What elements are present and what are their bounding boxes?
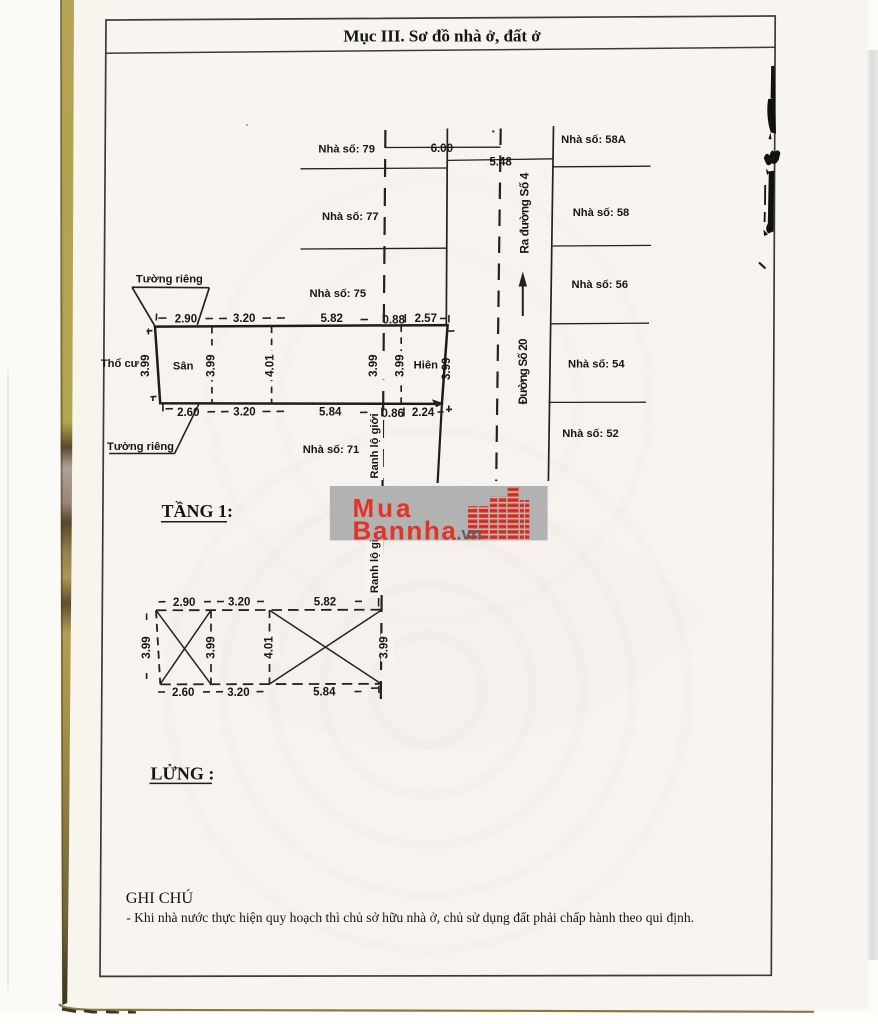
svg-text:3.20: 3.20 — [227, 687, 249, 699]
svg-text:0.86: 0.86 — [382, 408, 404, 420]
svg-text:.vn: .vn — [457, 523, 482, 543]
svg-text:Thổ cư: Thổ cư — [101, 358, 140, 370]
svg-text:Hiên: Hiên — [414, 360, 438, 372]
svg-text:Tường riêng: Tường riêng — [107, 441, 174, 453]
svg-text:Nhà số: 79: Nhà số: 79 — [318, 143, 375, 155]
svg-text:2.90: 2.90 — [173, 597, 195, 609]
svg-text:Bannha: Bannha — [353, 516, 458, 546]
svg-text:Nhà số: 58: Nhà số: 58 — [573, 207, 630, 219]
svg-text:Nhà số: 52: Nhà số: 52 — [562, 428, 619, 440]
svg-text:Mục III. Sơ đồ nhà ở, đất ở: Mục III. Sơ đồ nhà ở, đất ở — [343, 27, 541, 46]
svg-text:2.60: 2.60 — [172, 687, 194, 699]
svg-text:0.88: 0.88 — [383, 315, 406, 327]
svg-text:Nhà số: 56: Nhà số: 56 — [572, 279, 629, 291]
svg-text:5.48: 5.48 — [489, 156, 512, 168]
svg-text:3.99: 3.99 — [441, 358, 453, 380]
svg-text:3.99: 3.99 — [206, 636, 218, 658]
svg-text:3.99: 3.99 — [140, 355, 152, 377]
svg-text:Ra đường Số 4: Ra đường Số 4 — [518, 172, 532, 253]
svg-text:LỬNG :: LỬNG : — [151, 763, 215, 784]
svg-text:Nhà số: 77: Nhà số: 77 — [322, 211, 379, 223]
svg-text:3.99: 3.99 — [206, 355, 218, 377]
svg-text:Nhà số: 71: Nhà số: 71 — [303, 444, 360, 456]
svg-text:3.99: 3.99 — [378, 636, 390, 658]
svg-text:GHI CHÚ: GHI CHÚ — [126, 888, 194, 907]
svg-text:Ranh lộ giới: Ranh lộ giới — [369, 413, 381, 478]
svg-text:Sân: Sân — [173, 360, 194, 372]
svg-text:2.90: 2.90 — [175, 313, 197, 325]
svg-text:3.20: 3.20 — [233, 407, 255, 419]
svg-text:5.84: 5.84 — [313, 687, 336, 699]
svg-text:2.24: 2.24 — [412, 407, 435, 419]
svg-text:2.57: 2.57 — [415, 313, 437, 325]
svg-text:5.84: 5.84 — [319, 406, 342, 418]
svg-text:3.99: 3.99 — [368, 355, 380, 377]
svg-text:3.99: 3.99 — [395, 355, 407, 377]
svg-text:4.01: 4.01 — [263, 636, 275, 659]
svg-text:3.20: 3.20 — [233, 313, 255, 325]
svg-text:TẦNG 1:: TẦNG 1: — [162, 500, 234, 521]
svg-text:Nhà số: 54: Nhà số: 54 — [568, 359, 625, 371]
svg-text:4.01: 4.01 — [264, 354, 276, 377]
svg-text:3.99: 3.99 — [141, 636, 153, 658]
svg-text:3.20: 3.20 — [228, 597, 250, 609]
svg-text:Tường riêng: Tường riêng — [136, 274, 203, 286]
svg-text:6.00: 6.00 — [431, 143, 453, 155]
svg-text:- Khi nhà nước thực hiện quy h: - Khi nhà nước thực hiện quy hoạch thì c… — [126, 910, 694, 925]
svg-text:Đường Số 20: Đường Số 20 — [517, 339, 530, 404]
svg-text:5.82: 5.82 — [321, 313, 343, 325]
svg-text:Nhà số: 58A: Nhà số: 58A — [561, 134, 626, 146]
svg-text:Nhà số: 75: Nhà số: 75 — [310, 288, 367, 300]
svg-text:5.82: 5.82 — [314, 596, 336, 608]
